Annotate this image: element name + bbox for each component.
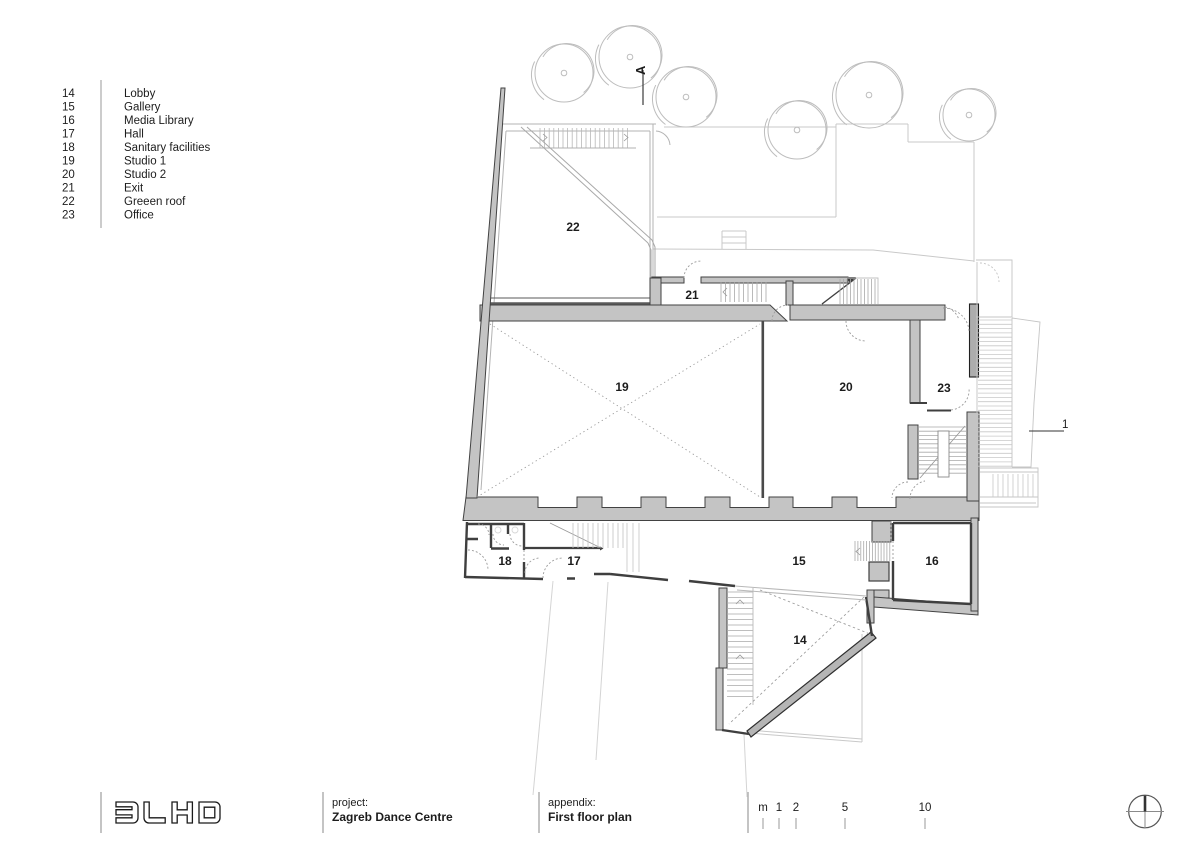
svg-text:appendix:: appendix:	[548, 797, 596, 809]
svg-text:Lobby: Lobby	[124, 88, 156, 100]
svg-text:14: 14	[793, 633, 807, 647]
svg-text:m: m	[758, 802, 768, 814]
svg-text:15: 15	[792, 554, 806, 568]
svg-text:1: 1	[1062, 419, 1068, 431]
svg-text:22: 22	[62, 196, 75, 208]
svg-text:1: 1	[776, 802, 782, 814]
svg-text:21: 21	[62, 183, 75, 195]
svg-text:project:: project:	[332, 797, 368, 809]
svg-text:Studio 1: Studio 1	[124, 156, 166, 168]
svg-text:Exit: Exit	[124, 183, 144, 195]
svg-text:Studio 2: Studio 2	[124, 169, 166, 181]
svg-text:10: 10	[919, 802, 932, 814]
svg-text:Sanitary facilities: Sanitary facilities	[124, 142, 211, 154]
svg-text:17: 17	[62, 129, 75, 141]
svg-text:14: 14	[62, 88, 75, 100]
svg-text:20: 20	[839, 380, 853, 394]
svg-text:22: 22	[566, 220, 580, 234]
svg-text:19: 19	[615, 380, 629, 394]
svg-text:15: 15	[62, 102, 75, 114]
svg-text:18: 18	[62, 142, 75, 154]
svg-text:21: 21	[685, 288, 699, 302]
svg-text:Zagreb Dance Centre: Zagreb Dance Centre	[332, 810, 453, 824]
svg-text:Office: Office	[124, 210, 154, 222]
svg-text:18: 18	[498, 554, 512, 568]
svg-text:Hall: Hall	[124, 129, 144, 141]
svg-text:Greeen roof: Greeen roof	[124, 196, 186, 208]
svg-text:Media Library: Media Library	[124, 115, 194, 127]
svg-text:17: 17	[567, 554, 581, 568]
svg-text:16: 16	[925, 554, 939, 568]
svg-text:16: 16	[62, 115, 75, 127]
svg-text:19: 19	[62, 156, 75, 168]
svg-text:First floor plan: First floor plan	[548, 810, 632, 824]
svg-text:A: A	[633, 65, 648, 75]
svg-text:Gallery: Gallery	[124, 102, 161, 114]
svg-text:5: 5	[842, 802, 848, 814]
svg-text:20: 20	[62, 169, 75, 181]
svg-text:2: 2	[793, 802, 799, 814]
svg-text:23: 23	[937, 381, 951, 395]
svg-text:23: 23	[62, 210, 75, 222]
